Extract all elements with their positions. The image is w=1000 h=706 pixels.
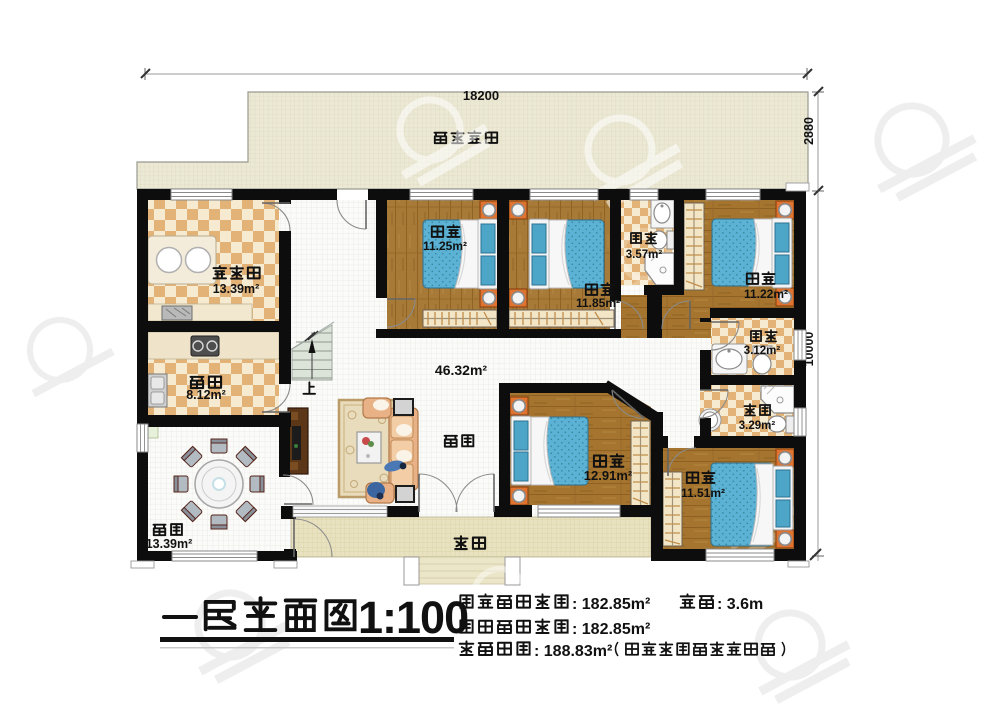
svg-text:3.57m²: 3.57m² — [626, 249, 663, 261]
svg-text:3.12m²: 3.12m² — [744, 345, 781, 357]
svg-text:: 3.6m: : 3.6m — [717, 596, 763, 613]
svg-text:11.25m²: 11.25m² — [423, 239, 467, 253]
svg-text:: 182.85m²: : 182.85m² — [572, 596, 650, 613]
svg-text:: 182.85m²: : 182.85m² — [572, 621, 650, 638]
svg-text:1:100: 1:100 — [358, 592, 468, 643]
svg-text:13.39m²: 13.39m² — [213, 282, 260, 296]
svg-text:11.85m²: 11.85m² — [576, 296, 620, 310]
svg-text:12.91m²: 12.91m² — [584, 468, 633, 483]
svg-text:18200: 18200 — [463, 88, 499, 103]
svg-text:11.51m²: 11.51m² — [681, 486, 725, 500]
svg-text:13.39m²: 13.39m² — [146, 537, 193, 551]
svg-text:8.12m²: 8.12m² — [186, 388, 226, 402]
svg-text:2880: 2880 — [802, 117, 816, 145]
svg-text:3.29m²: 3.29m² — [739, 420, 776, 432]
svg-text:46.32m²: 46.32m² — [435, 362, 487, 378]
svg-text:: 188.83m²: : 188.83m² — [534, 643, 612, 660]
svg-text:11.22m²: 11.22m² — [744, 287, 788, 301]
